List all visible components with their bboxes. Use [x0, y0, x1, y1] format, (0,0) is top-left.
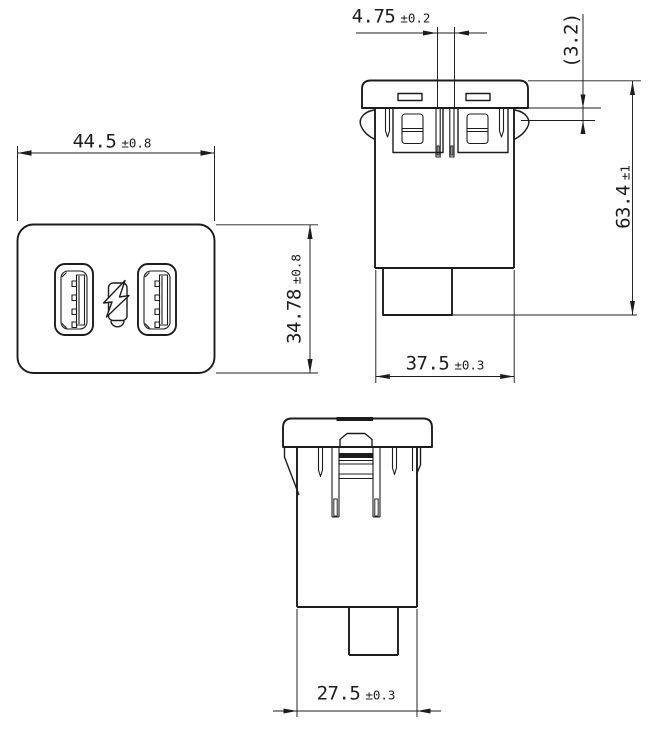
front-view: [18, 146, 319, 373]
dim-tolerance: ±0.3: [365, 690, 395, 703]
latch-left: [360, 110, 375, 140]
pin: [319, 447, 323, 477]
dim-value: 63.4: [615, 185, 634, 229]
bottom-view: [273, 417, 441, 717]
drawing-canvas: [0, 0, 663, 737]
side-flange-outline: [362, 81, 528, 109]
dim-flange-thickness-label: (3.2): [563, 8, 582, 68]
keying-notch: [340, 434, 372, 448]
bottom-flange-outline: [283, 419, 432, 448]
dim-value: 4.75: [352, 8, 396, 27]
flange-top-slot: [337, 417, 374, 421]
pin: [500, 108, 504, 137]
dim-front-height-label: 34.78 ±0.8: [286, 254, 305, 344]
dim-side-body-width-label: 37.5 ±0.3: [406, 355, 485, 374]
dim-tolerance: ±0.3: [454, 360, 484, 373]
dim-tolerance: ±0.8: [121, 138, 151, 151]
dim-value: 44.5: [73, 133, 117, 152]
dim-bottom-body-width-label: 27.5 ±0.3: [317, 685, 396, 704]
bottom-body-outline: [297, 447, 417, 607]
dim-tolerance: ±0.8: [291, 254, 304, 284]
pin: [386, 108, 390, 137]
dim-value: (3.2): [563, 13, 582, 68]
lightning-bolt-icon: [104, 281, 130, 327]
usb-port-right-icon: [138, 264, 176, 335]
dim-value: 27.5: [317, 685, 361, 704]
dim-value: 37.5: [406, 355, 450, 374]
dim-pin-pitch-label: 4.75 ±0.2: [352, 8, 431, 27]
dim-front-width-label: 44.5 ±0.8: [73, 133, 152, 152]
bottom-rear-boss: [349, 607, 398, 655]
technical-drawing-page: 44.5 ±0.8 34.78 ±0.8 4.75 ±0.2 (3.2) 63.…: [0, 0, 663, 737]
center-pins: [436, 108, 454, 157]
dim-tolerance: ±1: [620, 165, 633, 180]
dim-value: 34.78: [286, 289, 305, 344]
dim-tolerance: ±0.2: [400, 13, 430, 26]
usb-port-left-icon: [55, 264, 93, 335]
contact-stack: [339, 453, 373, 479]
latch-right: [514, 110, 529, 140]
side-rear-boss: [383, 268, 452, 315]
connector-block-right: [458, 108, 508, 153]
side-view: [356, 14, 641, 383]
dim-front-width-lines: [18, 146, 215, 221]
pin: [393, 447, 397, 475]
flange-slot: [398, 94, 422, 101]
dim-overall-depth-label: 63.4 ±1: [615, 165, 634, 229]
flange-slot: [466, 94, 490, 101]
side-body-outline: [375, 108, 514, 268]
